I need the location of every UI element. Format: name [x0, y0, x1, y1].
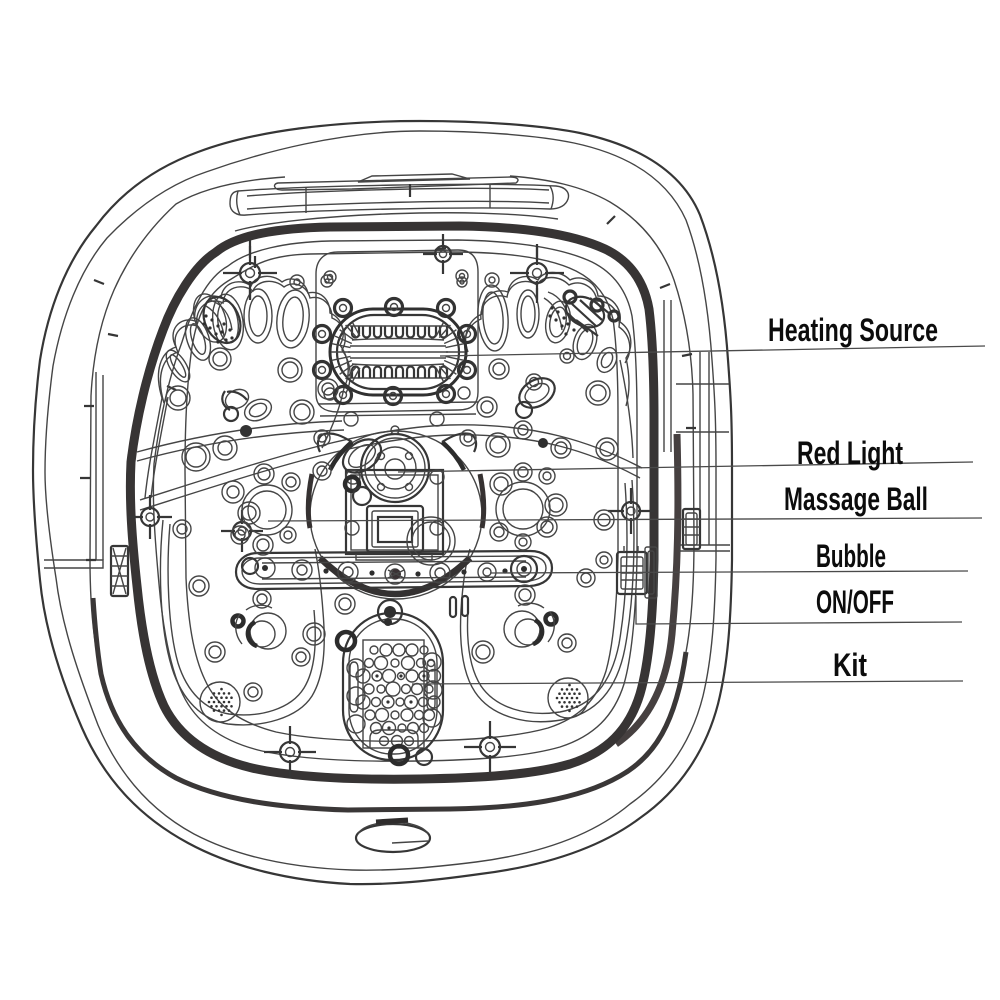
svg-text:Kit: Kit — [833, 647, 867, 683]
svg-text:Red Light: Red Light — [797, 435, 903, 471]
svg-text:Heating Source: Heating Source — [768, 312, 938, 348]
svg-text:ON/OFF: ON/OFF — [816, 584, 894, 620]
svg-text:Massage Ball: Massage Ball — [784, 481, 928, 517]
svg-text:Bubble: Bubble — [816, 538, 886, 574]
